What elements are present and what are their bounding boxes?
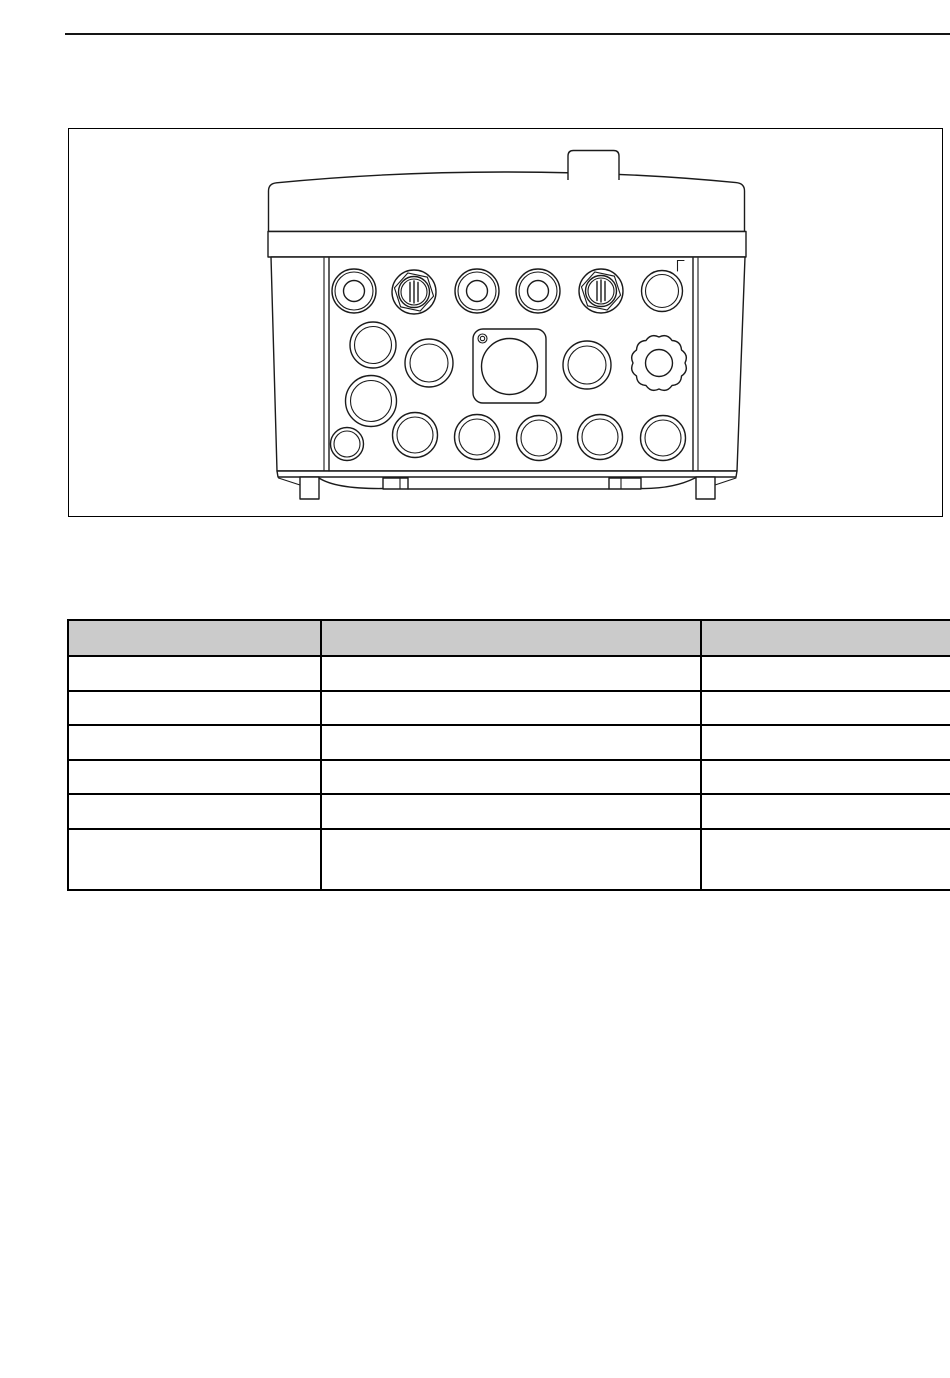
device-top-knob bbox=[568, 151, 619, 181]
table-header-row bbox=[68, 620, 950, 656]
table-header-cell bbox=[701, 620, 950, 656]
table-cell bbox=[321, 691, 701, 725]
bottom-tab-right bbox=[609, 478, 641, 489]
table-cell bbox=[68, 691, 321, 725]
blue-cable-gland-1 bbox=[332, 269, 376, 313]
blind-plug-bottom-4 bbox=[578, 415, 623, 460]
blue-connector-gland-2 bbox=[578, 269, 624, 313]
bottom-contour-right bbox=[641, 478, 695, 489]
device-lid bbox=[269, 172, 745, 232]
ports-table bbox=[67, 619, 950, 891]
blind-plug-small bbox=[331, 428, 364, 461]
blind-plug-bottom-5 bbox=[641, 416, 686, 461]
bottom-tab-left bbox=[383, 478, 408, 489]
table-cell bbox=[68, 829, 321, 890]
device-drawing bbox=[69, 129, 942, 516]
blue-rosette-gland bbox=[632, 336, 687, 391]
blind-plug-bottom-1 bbox=[393, 413, 438, 458]
table-cell bbox=[68, 656, 321, 691]
table-row bbox=[68, 656, 950, 691]
blind-plug-mid-1 bbox=[350, 322, 396, 368]
device-foot-left bbox=[300, 477, 319, 499]
table-cell bbox=[701, 691, 950, 725]
document-page: { "colors": { "accent_blue": "#b5d3e7", … bbox=[0, 0, 950, 1378]
bottom-corner-right bbox=[715, 478, 736, 485]
table-row bbox=[68, 725, 950, 760]
blue-cable-gland-2 bbox=[455, 269, 499, 313]
table-header-cell bbox=[68, 620, 321, 656]
enclosure-bottom-view bbox=[268, 151, 746, 500]
table-cell bbox=[321, 656, 701, 691]
device-base-strip bbox=[277, 471, 737, 477]
table-cell bbox=[701, 794, 950, 829]
table-row bbox=[68, 794, 950, 829]
table-cell bbox=[321, 725, 701, 760]
table-cell bbox=[321, 794, 701, 829]
blue-cable-gland-3 bbox=[516, 269, 560, 313]
table-cell bbox=[321, 829, 701, 890]
blind-plug-mid-3 bbox=[563, 341, 611, 389]
table-row bbox=[68, 760, 950, 794]
table-row bbox=[68, 691, 950, 725]
bottom-contour-left bbox=[319, 478, 383, 489]
table-cell bbox=[68, 794, 321, 829]
blind-plug-bottom-2 bbox=[455, 415, 500, 460]
table-cell bbox=[68, 725, 321, 760]
device-band bbox=[268, 232, 746, 258]
blind-plug-mid-2 bbox=[405, 339, 453, 387]
device-foot-right bbox=[696, 477, 715, 499]
table-header-cell bbox=[321, 620, 701, 656]
service-plate bbox=[473, 329, 546, 403]
blind-plug-bottom-3 bbox=[517, 416, 562, 461]
table-cell bbox=[701, 656, 950, 691]
table-cell bbox=[701, 829, 950, 890]
table-cell bbox=[701, 725, 950, 760]
table-cell bbox=[701, 760, 950, 794]
blind-plug-mid-4 bbox=[346, 376, 397, 427]
figure-frame bbox=[68, 128, 943, 517]
table-row bbox=[68, 829, 950, 890]
blind-plug-top bbox=[642, 271, 683, 312]
top-rule bbox=[65, 33, 950, 35]
blue-connector-gland-1 bbox=[391, 270, 437, 314]
table-cell bbox=[68, 760, 321, 794]
bottom-corner-left bbox=[279, 478, 301, 485]
ports-table-container bbox=[67, 619, 950, 906]
table-cell bbox=[321, 760, 701, 794]
